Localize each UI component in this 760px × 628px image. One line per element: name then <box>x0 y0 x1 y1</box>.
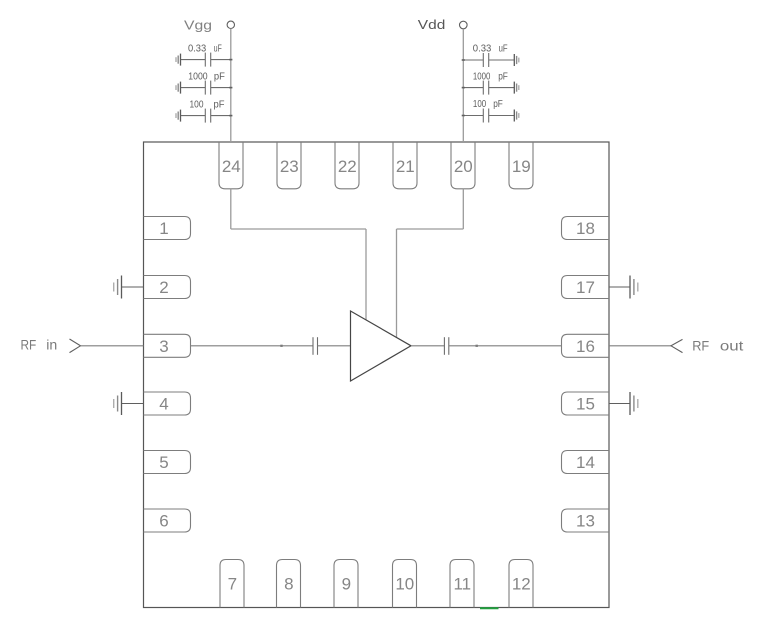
svg-text:17: 17 <box>576 278 595 297</box>
svg-text:Vgg: Vgg <box>184 17 212 32</box>
svg-text:100: 100 <box>190 98 204 110</box>
svg-text:15: 15 <box>576 395 595 414</box>
svg-text:22: 22 <box>338 157 357 176</box>
svg-text:1000: 1000 <box>473 70 491 82</box>
svg-text:4: 4 <box>159 395 168 414</box>
svg-text:3: 3 <box>159 337 168 356</box>
svg-text:2: 2 <box>159 278 168 297</box>
svg-text:uF: uF <box>499 43 508 55</box>
svg-text:1000: 1000 <box>188 70 207 82</box>
svg-text:12: 12 <box>512 575 531 594</box>
svg-text:24: 24 <box>222 157 241 176</box>
svg-text:6: 6 <box>159 512 168 531</box>
svg-text:pF: pF <box>214 98 225 110</box>
svg-text:0.33: 0.33 <box>473 43 492 55</box>
svg-text:RF: RF <box>21 338 37 353</box>
svg-text:20: 20 <box>454 157 473 176</box>
svg-text:1: 1 <box>159 219 168 238</box>
svg-text:5: 5 <box>159 453 168 472</box>
svg-text:11: 11 <box>453 575 471 594</box>
svg-text:100: 100 <box>473 98 486 110</box>
svg-text:8: 8 <box>284 575 293 594</box>
svg-text:9: 9 <box>342 575 351 594</box>
svg-text:23: 23 <box>280 157 299 176</box>
svg-text:pF: pF <box>214 70 225 82</box>
svg-text:RF: RF <box>692 339 709 354</box>
svg-text:0.33: 0.33 <box>188 42 206 54</box>
svg-text:out: out <box>720 339 744 354</box>
svg-text:pF: pF <box>493 98 503 110</box>
svg-text:14: 14 <box>576 453 595 472</box>
svg-text:uF: uF <box>214 42 222 54</box>
svg-text:21: 21 <box>396 157 415 176</box>
svg-text:pF: pF <box>498 70 508 82</box>
svg-text:13: 13 <box>576 512 595 531</box>
svg-text:16: 16 <box>576 337 595 356</box>
svg-text:19: 19 <box>512 157 531 176</box>
svg-text:7: 7 <box>228 575 237 594</box>
svg-text:in: in <box>46 338 57 353</box>
svg-text:Vdd: Vdd <box>418 17 446 32</box>
svg-text:18: 18 <box>576 219 595 238</box>
svg-text:10: 10 <box>395 575 414 594</box>
